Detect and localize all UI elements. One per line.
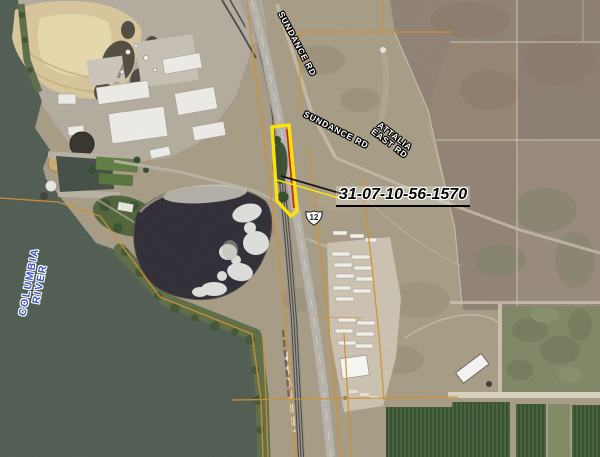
parcel-id-label[interactable]: 31-07-10-56-1570 [336, 186, 470, 207]
grain-overlay [0, 0, 600, 457]
aerial-map-viewport[interactable]: SUNDANCE RD SUNDANCE RD ATTALIA EAST RD … [0, 0, 600, 457]
highway-12-shield: 12 [305, 210, 323, 226]
aerial-imagery [0, 0, 600, 457]
highway-number: 12 [305, 213, 323, 222]
